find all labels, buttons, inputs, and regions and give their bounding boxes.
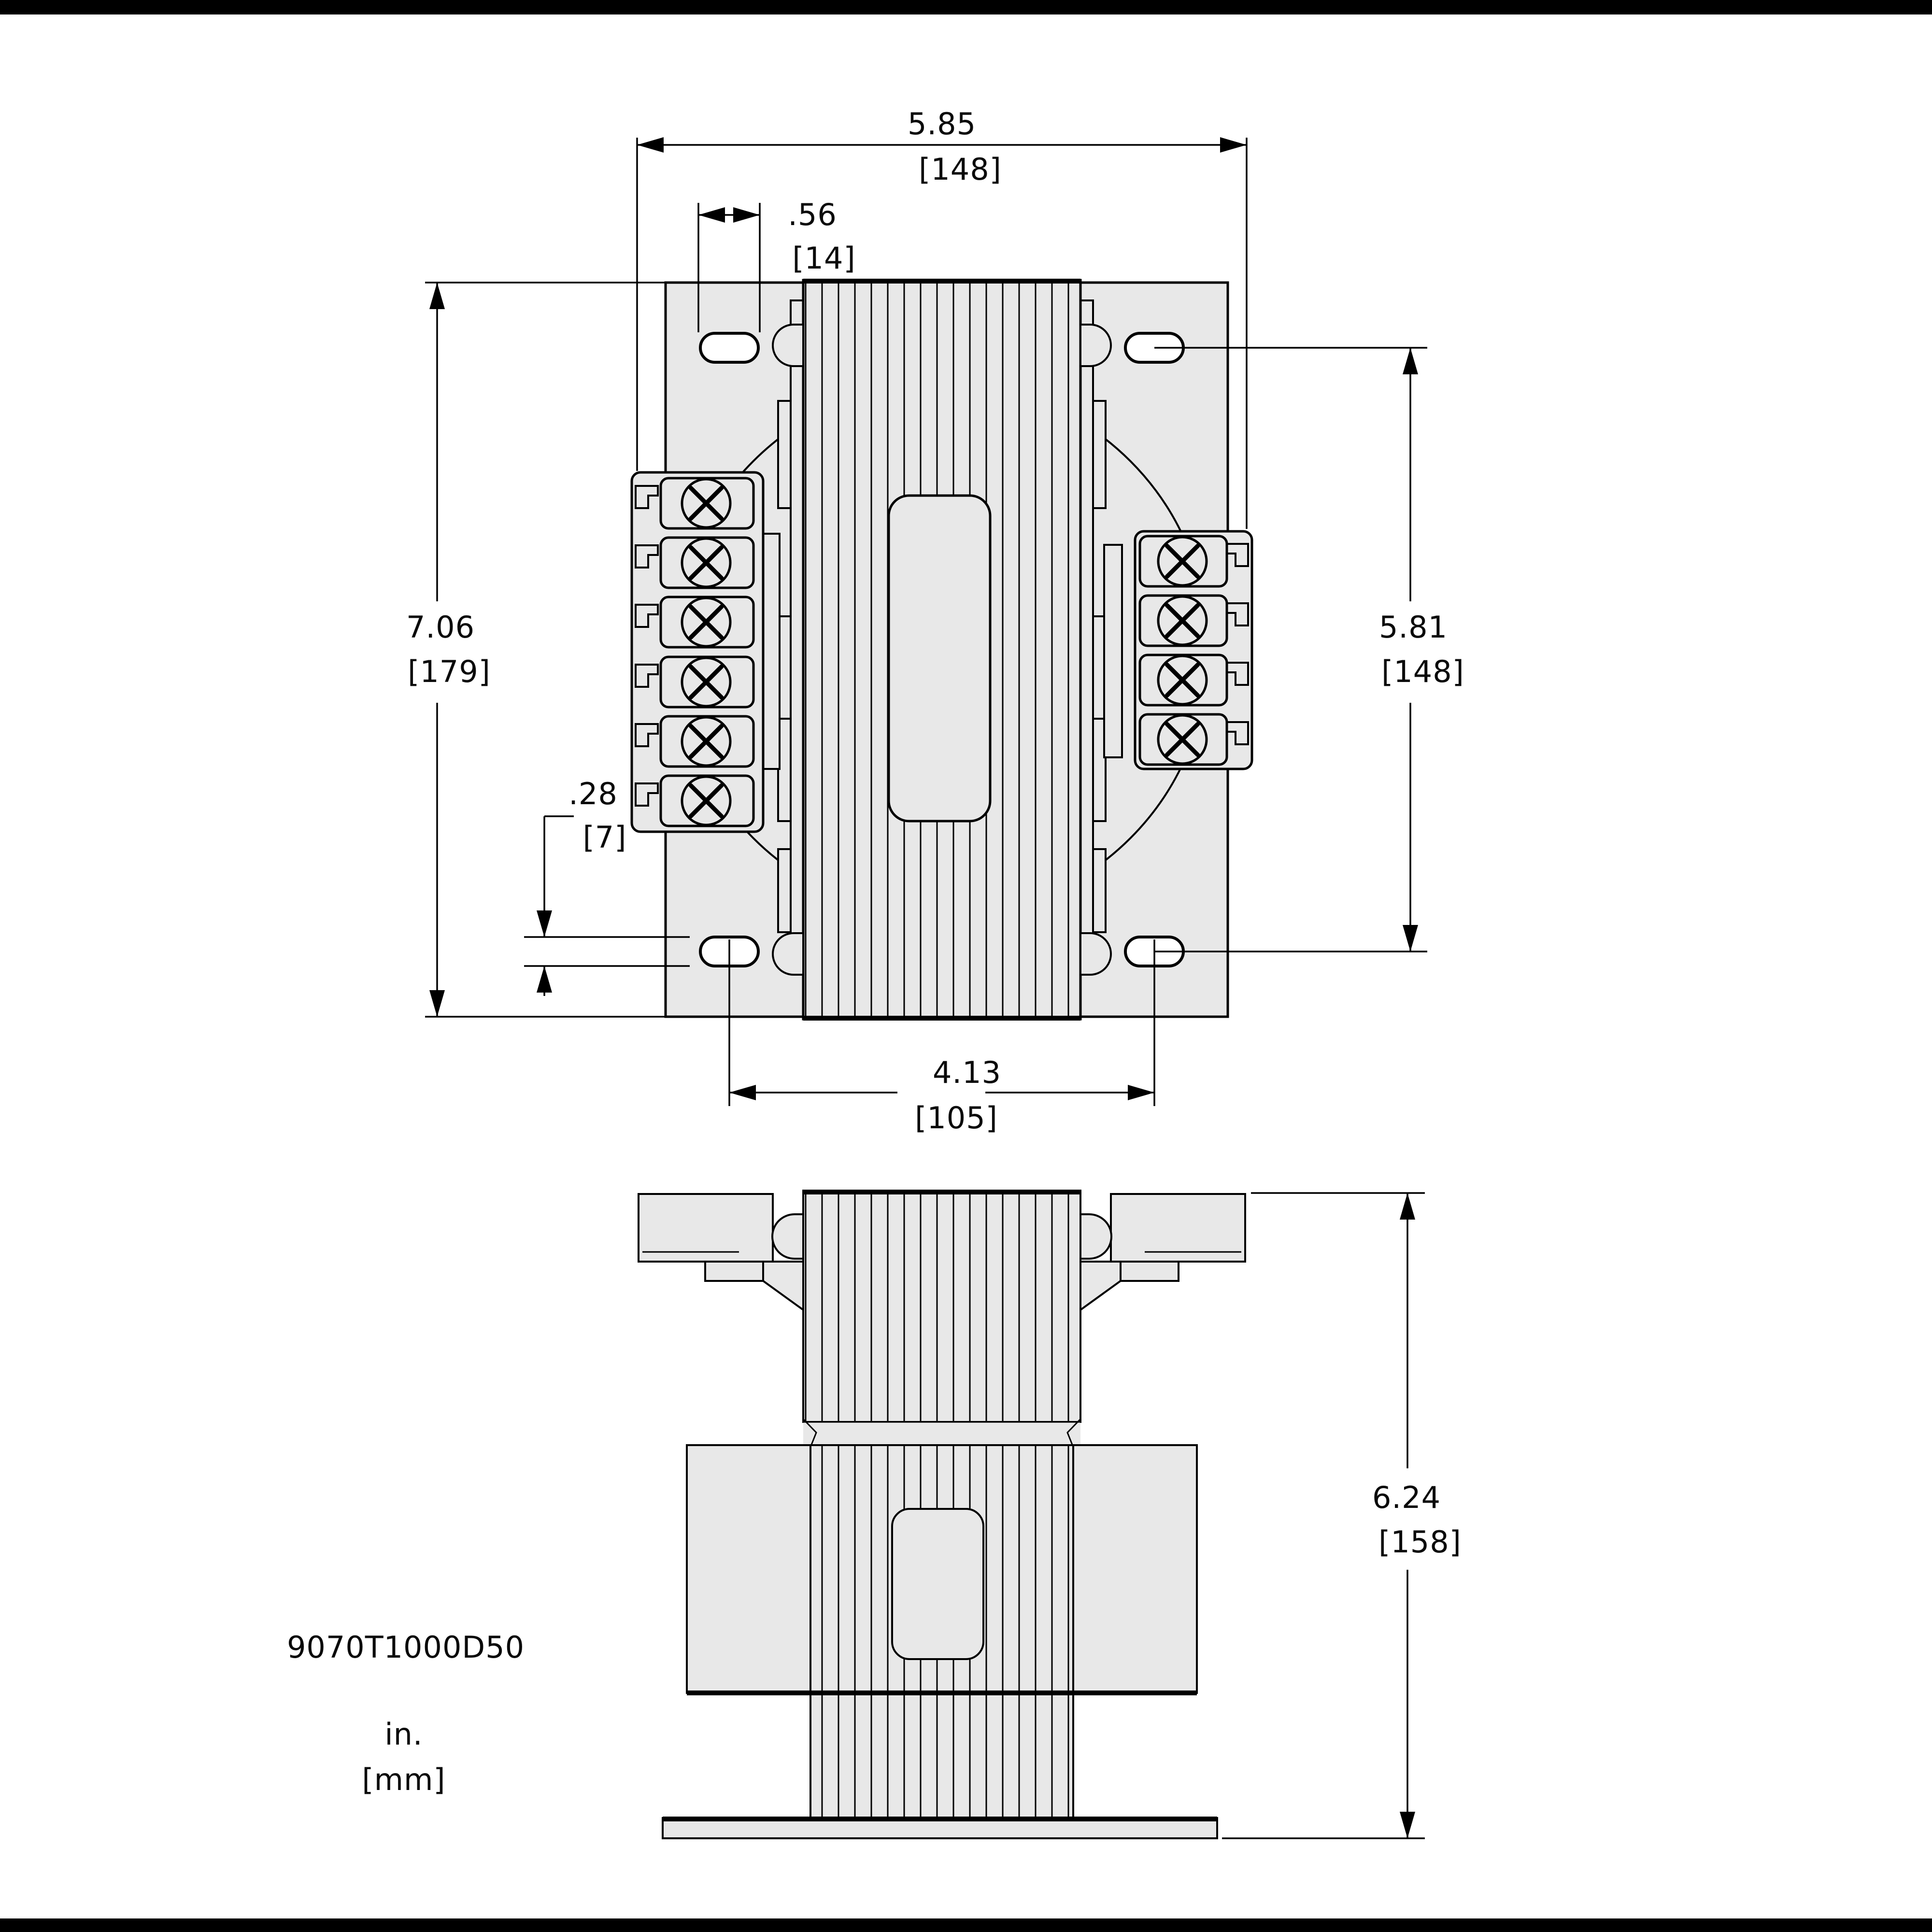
drawing-canvas: 5.85 [148] .56 [14] 7.06 [179] bbox=[0, 0, 1932, 1932]
dim-slot-vertical-spacing-in: 5.81 bbox=[1379, 610, 1448, 645]
letterbox-bar-bottom bbox=[0, 1918, 1932, 1932]
mounting-slot-top-left bbox=[700, 333, 758, 362]
dim-overall-height-in: 7.06 bbox=[406, 610, 475, 645]
dim-overall-width-in: 5.85 bbox=[908, 106, 976, 142]
dim-slot-horizontal-spacing-in: 4.13 bbox=[933, 1055, 1001, 1090]
transformer-dimension-drawing: 5.85 [148] .56 [14] 7.06 [179] bbox=[0, 0, 1932, 1932]
dim-side-overall-height-mm: [158] bbox=[1378, 1524, 1462, 1560]
units-inches-label: in. bbox=[384, 1717, 423, 1752]
dim-slot-width-mm: [7] bbox=[583, 820, 627, 855]
dim-slot-width-in: .28 bbox=[568, 776, 618, 811]
units-mm-label: [mm] bbox=[362, 1762, 445, 1797]
dim-overall-height-mm: [179] bbox=[408, 654, 491, 689]
side-nameplate bbox=[892, 1509, 983, 1659]
terminal-bracket-right bbox=[1104, 545, 1122, 757]
letterbox-bar-top bbox=[0, 0, 1932, 14]
terminal-block-left bbox=[632, 472, 763, 832]
front-view bbox=[632, 280, 1252, 1019]
part-number: 9070T1000D50 bbox=[287, 1630, 525, 1665]
dim-slot-length-in: .56 bbox=[788, 197, 837, 232]
terminal-block-right bbox=[1135, 531, 1252, 769]
terminal-bracket-left bbox=[762, 534, 780, 769]
side-core-waist bbox=[803, 1419, 1080, 1447]
dim-slot-vertical-spacing-mm: [148] bbox=[1381, 654, 1464, 689]
dim-slot-horizontal-spacing-mm: [105] bbox=[915, 1100, 998, 1136]
dim-overall-width-mm: [148] bbox=[919, 152, 1002, 187]
nameplate bbox=[889, 496, 990, 821]
side-base-flange bbox=[663, 1818, 1217, 1838]
dim-slot-length-mm: [14] bbox=[792, 241, 855, 276]
dim-side-overall-height-in: 6.24 bbox=[1372, 1480, 1441, 1515]
side-core-upper bbox=[803, 1191, 1080, 1422]
